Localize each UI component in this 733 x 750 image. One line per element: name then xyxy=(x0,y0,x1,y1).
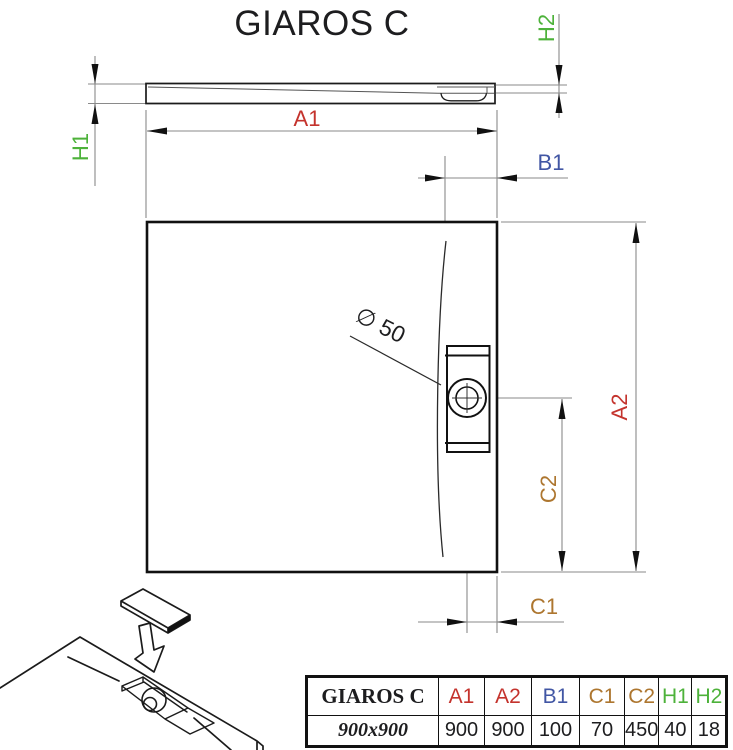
side-view xyxy=(146,84,495,104)
spec-value-a1: 900 xyxy=(439,716,485,747)
spec-header-h2: H2 xyxy=(692,677,727,716)
drain-detail-3d xyxy=(0,589,263,750)
drain-symbol xyxy=(448,379,486,417)
spec-header-a1: A1 xyxy=(439,677,485,716)
spec-header-a2: A2 xyxy=(485,677,532,716)
spec-value-b1: 100 xyxy=(532,716,580,747)
dim-label-b1: B1 xyxy=(538,150,565,175)
spec-value-c2: 450 xyxy=(625,716,659,747)
spec-table: GIAROS C A1 A2 B1 C1 C2 H1 H2 900x900 90… xyxy=(305,675,728,748)
spec-value-h2: 18 xyxy=(692,716,727,747)
spec-header-b1: B1 xyxy=(532,677,580,716)
tray-outline xyxy=(147,222,497,572)
spec-header-c1: C1 xyxy=(580,677,625,716)
dim-label-h2: H2 xyxy=(534,14,559,42)
drawing-canvas: ∅ 50 A1 B1 A2 C2 C1 H1 H2 xyxy=(0,0,733,750)
technical-drawing-page: GIAROS C ∅ 50 xyxy=(0,0,733,750)
spec-table-header-row: GIAROS C A1 A2 B1 C1 C2 H1 H2 xyxy=(307,677,727,716)
spec-header-model: GIAROS C xyxy=(307,677,439,716)
dim-label-c1: C1 xyxy=(530,594,558,619)
cover-plate-3d xyxy=(121,589,190,633)
dim-label-a1: A1 xyxy=(294,106,321,131)
spec-value-h1: 40 xyxy=(659,716,692,747)
dim-label-c2: C2 xyxy=(536,475,561,503)
spec-value-c1: 70 xyxy=(580,716,625,747)
placement-arrow-icon xyxy=(135,623,164,672)
plan-view: ∅ 50 xyxy=(147,222,497,572)
channel-recess xyxy=(122,677,214,734)
spec-value-a2: 900 xyxy=(485,716,532,747)
dim-label-a2: A2 xyxy=(607,394,632,421)
spec-header-h1: H1 xyxy=(659,677,692,716)
spec-header-c2: C2 xyxy=(625,677,659,716)
spec-value-size: 900x900 xyxy=(307,716,439,747)
spec-table-value-row: 900x900 900 900 100 70 450 40 18 xyxy=(307,716,727,747)
dim-label-h1: H1 xyxy=(68,133,93,161)
